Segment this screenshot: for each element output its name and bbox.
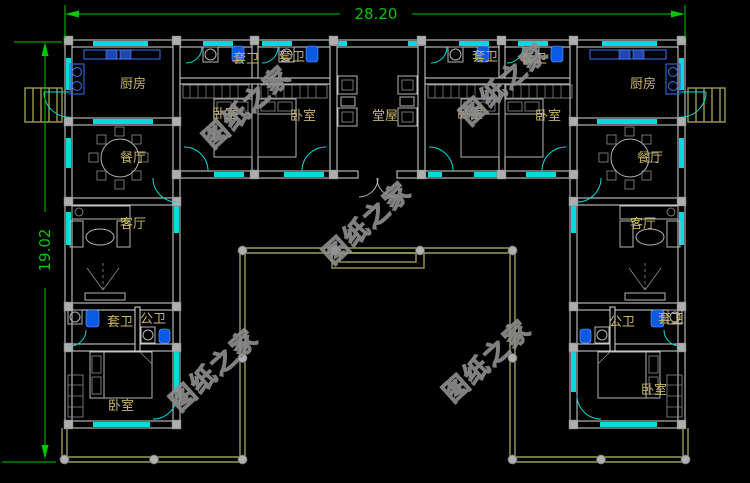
sink-icon: [120, 50, 131, 59]
room-labels: 厨房 厨房 餐厅 餐厅 客厅 客厅 堂屋 卧室 卧室 卧室 卧室 卧室 卧室 套…: [107, 49, 684, 413]
bed: [90, 352, 152, 398]
room-label-bedroom: 卧室: [641, 382, 667, 397]
stove-burner-icon: [669, 68, 678, 77]
room-label-ensuite-bath: 套卫: [233, 51, 259, 66]
room-label-dining: 餐厅: [120, 150, 146, 165]
dimension-width-label: 28.20: [355, 5, 398, 23]
floor-plan-svg: 28.20 19.02 厨房 厨房 餐厅 餐厅 客厅 客厅 堂屋 卧室 卧室 卧…: [0, 0, 750, 483]
room-label-living: 客厅: [120, 216, 146, 231]
sink-icon: [106, 50, 117, 59]
sink-icon: [633, 50, 644, 59]
room-label-bedroom: 卧室: [108, 398, 134, 413]
room-label-public-bath: 公卫: [140, 311, 166, 326]
room-label-public-bath: 公卫: [609, 314, 635, 329]
room-label-hall: 堂屋: [372, 108, 398, 123]
room-label-dining: 餐厅: [637, 150, 663, 165]
room-label-ensuite-bath: 套卫: [472, 49, 498, 64]
stove-burner-icon: [73, 82, 82, 91]
stove-burner-icon: [73, 68, 82, 77]
room-label-ensuite-bath: 套卫: [107, 314, 133, 329]
watermarks: 图纸之家 图纸之家 图纸之家 图纸之家 图纸之家: [164, 37, 554, 417]
courtyard-fence: [60, 246, 690, 464]
room-label-bedroom: 卧室: [535, 108, 561, 123]
room-label-kitchen: 厨房: [120, 76, 146, 91]
room-label-ensuite-bath: 套卫: [658, 311, 684, 326]
dimension-height-label: 19.02: [36, 229, 54, 272]
watermark: 图纸之家: [437, 314, 537, 408]
tv-icon: [85, 293, 125, 300]
wardrobes: [68, 85, 682, 417]
floor-plan-canvas: 28.20 19.02 厨房 厨房 餐厅 餐厅 客厅 客厅 堂屋 卧室 卧室 卧…: [0, 0, 750, 483]
sink-icon: [619, 50, 630, 59]
kitchen-counters: [70, 50, 680, 94]
room-label-bedroom: 卧室: [290, 108, 316, 123]
room-label-kitchen: 厨房: [630, 76, 656, 91]
watermark: 图纸之家: [317, 176, 417, 270]
room-label-ensuite-bath: 套卫: [279, 49, 305, 64]
tv-icon: [625, 293, 665, 300]
stove-burner-icon: [669, 82, 678, 91]
room-label-living: 客厅: [630, 216, 656, 231]
